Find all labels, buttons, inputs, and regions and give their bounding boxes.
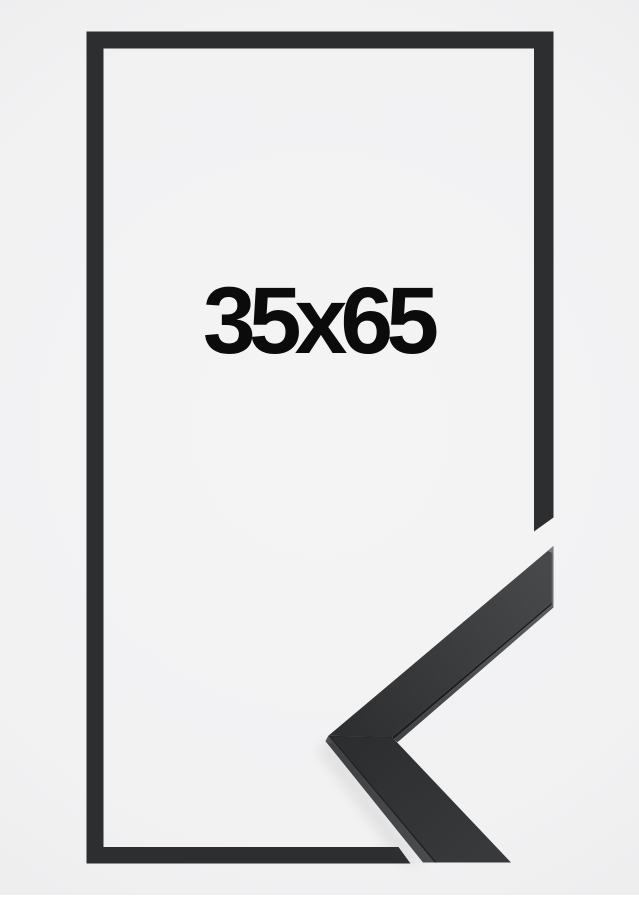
svg-text:35x65: 35x65 — [203, 268, 437, 374]
